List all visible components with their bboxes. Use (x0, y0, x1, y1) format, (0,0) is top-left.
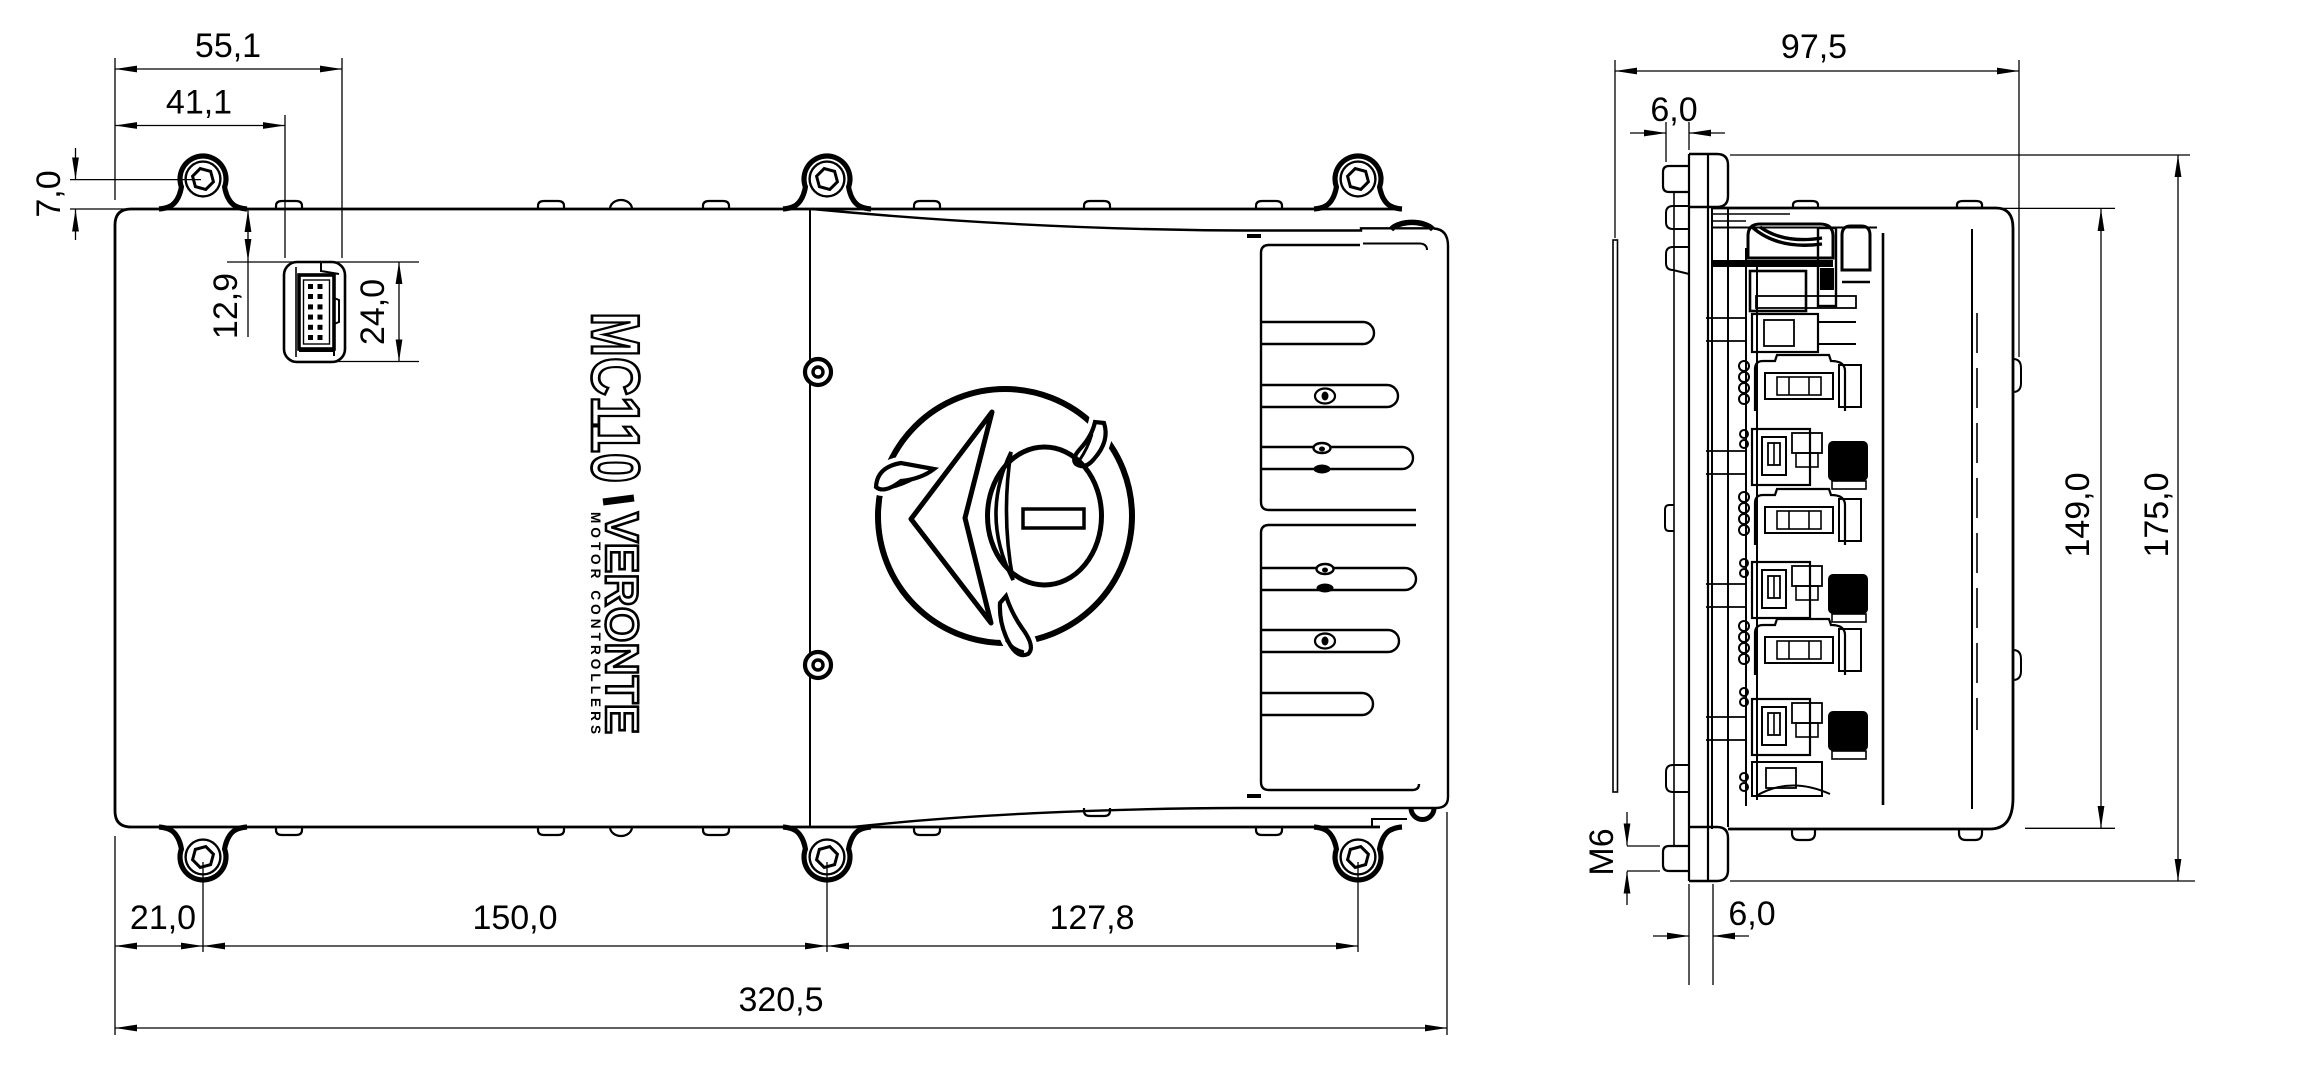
svg-text:97,5: 97,5 (1781, 28, 1847, 66)
svg-text:21,0: 21,0 (130, 899, 196, 937)
svg-text:55,1: 55,1 (195, 27, 261, 65)
svg-text:149,0: 149,0 (2059, 472, 2097, 557)
svg-text:M6: M6 (1583, 828, 1621, 875)
svg-text:175,0: 175,0 (2138, 472, 2176, 557)
svg-text:7,0: 7,0 (30, 170, 68, 217)
svg-text:41,1: 41,1 (166, 84, 232, 122)
svg-text:MOTOR CONTROLLERS: MOTOR CONTROLLERS (588, 512, 603, 734)
svg-text:24,0: 24,0 (354, 279, 392, 345)
svg-text:6,0: 6,0 (1728, 895, 1775, 933)
svg-text:MC110: MC110 (576, 312, 652, 483)
svg-text:150,0: 150,0 (472, 899, 557, 937)
svg-text:6,0: 6,0 (1650, 91, 1697, 129)
svg-text:127,8: 127,8 (1049, 899, 1134, 937)
svg-text:12,9: 12,9 (207, 273, 245, 339)
svg-text:320,5: 320,5 (738, 981, 823, 1019)
